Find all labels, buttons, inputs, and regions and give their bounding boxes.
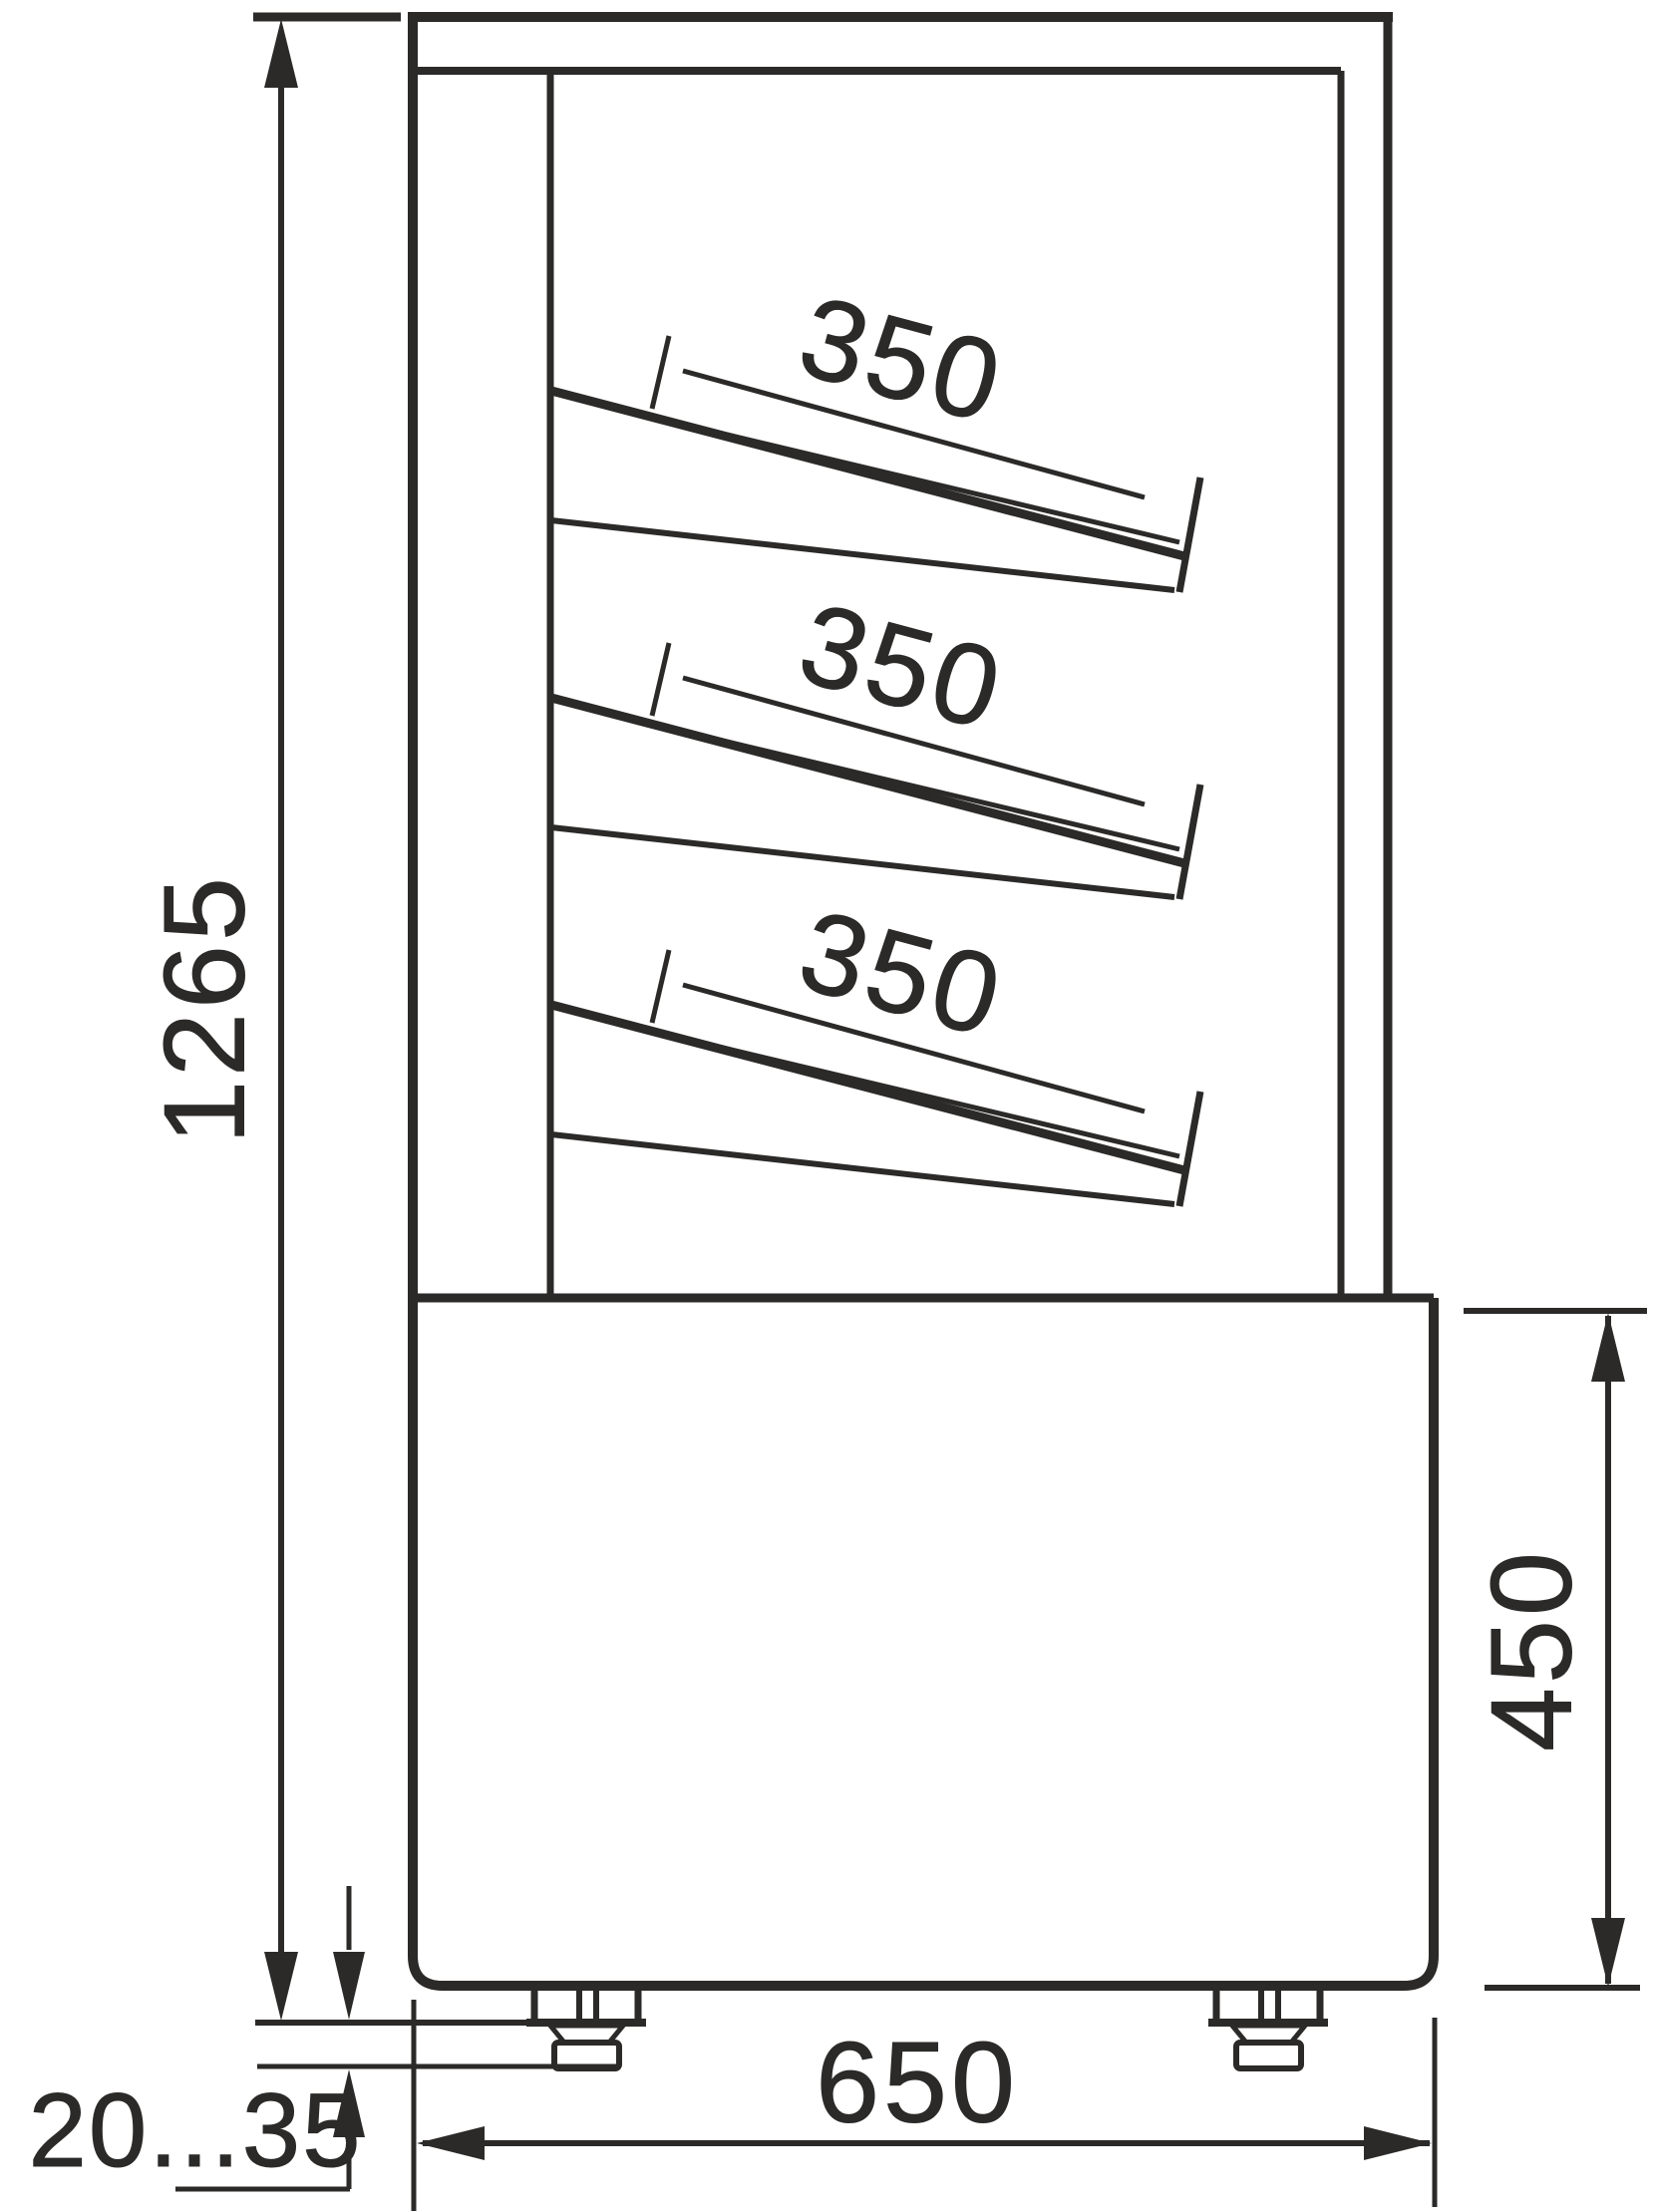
shelf-front-lip (1179, 1092, 1200, 1206)
foot-left (526, 1986, 646, 2068)
foot-right (1208, 1986, 1328, 2068)
shelf-3: 350 (551, 886, 1200, 1206)
shelf-front-lip (1179, 785, 1200, 899)
arrowhead-up (1591, 1313, 1625, 1382)
dim-overall-height: 1265 (141, 17, 528, 2023)
drawing-lines: 350 350 350 (28, 12, 1647, 2211)
arrowhead-right (1364, 2126, 1432, 2160)
shelf-2: 350 (551, 579, 1200, 899)
feet-range-label: 20...35 (28, 2072, 362, 2189)
dim-base-depth: 650 (414, 2000, 1435, 2211)
shelf-front-lip (1179, 477, 1200, 592)
shelf-1: 350 (551, 272, 1200, 592)
arrowhead-down (264, 1952, 298, 2021)
shelf-depth-label: 350 (788, 886, 1017, 1062)
shelf-depth-label: 350 (788, 272, 1017, 448)
arrowhead-up (264, 19, 298, 88)
shelf-dim-tick (652, 643, 669, 716)
shelf-top-surface-line (576, 399, 1179, 542)
shelf-dim-tick (652, 950, 669, 1023)
dim-base-height: 450 (1464, 1311, 1647, 1988)
arrowhead-down (1591, 1918, 1625, 1987)
base-height-label: 450 (1468, 1548, 1595, 1751)
overall-height-label: 1265 (141, 873, 268, 1144)
display-case-side-view-drawing: 350 350 350 (0, 0, 1654, 2212)
drawing-page: 350 350 350 (0, 0, 1654, 2212)
arrowhead-left (417, 2126, 485, 2160)
shelf-top-surface-line (576, 1013, 1179, 1156)
shelf-dim-tick (652, 336, 669, 409)
shelf-depth-label: 350 (788, 579, 1017, 755)
base-depth-label: 650 (816, 2019, 1019, 2146)
foot-pad (1236, 2043, 1301, 2068)
arrowhead-down (333, 1952, 365, 2020)
shelf-top-surface-line (576, 706, 1179, 849)
